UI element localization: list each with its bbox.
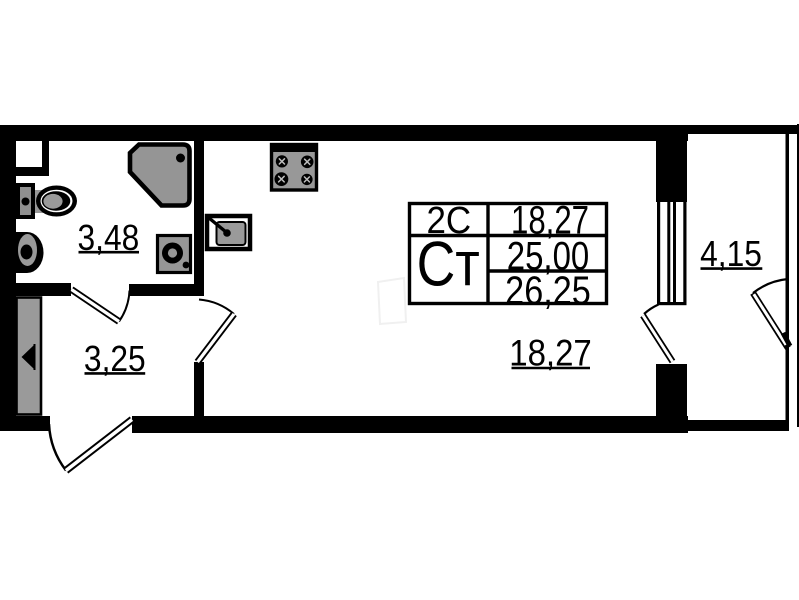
svg-text:Ст: Ст [417, 229, 480, 299]
svg-text:26,25: 26,25 [505, 267, 591, 312]
